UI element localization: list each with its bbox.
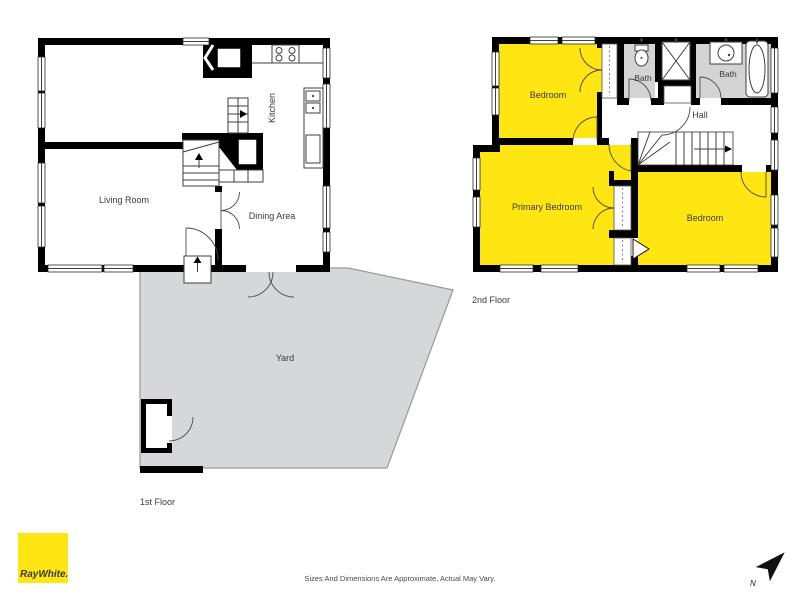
sf-linen-right: [691, 80, 696, 105]
closet-primary: [614, 186, 631, 230]
sf-step-wall: [473, 145, 500, 152]
first-floor-label: 1st Floor: [140, 497, 175, 507]
room-label-yard: Yard: [276, 353, 294, 363]
room-label-bedroom-bottom: Bedroom: [687, 213, 724, 223]
porch-floor: [146, 404, 167, 448]
porch-door-opening: [166, 416, 172, 443]
shower: [662, 42, 690, 80]
room-label-bedroom-top: Bedroom: [530, 90, 567, 100]
sf-shower-left-wall: [655, 40, 662, 82]
sf-bed-closet-wall-top: [597, 37, 602, 48]
sf-bedroom-top-wall-a: [637, 165, 742, 172]
upper-stairs: [638, 132, 733, 165]
room-label-primary-bedroom: Primary Bedroom: [512, 202, 582, 212]
yard-bottom-wall: [140, 466, 203, 473]
room-label-kitchen: Kitchen: [267, 93, 277, 123]
disclaimer-text: Sizes And Dimensions Are Approximate, Ac…: [304, 574, 495, 583]
ff-room-divider-wall: [38, 142, 188, 149]
sf-divider-wall-b: [597, 138, 609, 145]
sink-drain: [312, 95, 314, 97]
toilet: [635, 45, 648, 66]
sf-closet-bath-wall: [617, 37, 624, 105]
room-label-living-room: Living Room: [99, 195, 149, 205]
sf-shower-right-wall: [690, 40, 696, 82]
ff-dining-wall-stub-bottom: [215, 229, 222, 272]
compass-arrow-icon: [756, 545, 792, 581]
second-floor-plan: Bedroom Bath Bath Hall Primary Bedroom B…: [472, 37, 778, 305]
sf-closetA-bottom-wall: [609, 230, 631, 238]
logo-wordmark: RayWhite.: [20, 569, 68, 580]
room-label-bath-right: Bath: [719, 69, 737, 79]
bathtub: [746, 41, 768, 97]
brand-logo: RayWhite.: [18, 533, 68, 583]
stair-pantry: [238, 139, 257, 165]
stair-cabinets: [219, 170, 263, 182]
yard-door-opening: [246, 265, 296, 272]
room-label-bath-left: Bath: [634, 73, 652, 83]
yard-shape: [140, 268, 453, 468]
closet-top-bedroom: [602, 44, 617, 98]
compass: N: [750, 545, 792, 588]
floorplan-canvas: Living Room Kitchen Dining Area Yard 1st…: [0, 0, 800, 600]
sf-stair-west-wall: [631, 138, 638, 238]
sink-drain: [312, 107, 314, 109]
sf-bed-closet-wall-bot: [597, 92, 602, 138]
basement-stairs: [228, 98, 248, 133]
floorplan-page: Living Room Kitchen Dining Area Yard 1st…: [0, 0, 800, 600]
sf-closetA-top-wall: [612, 180, 631, 186]
sf-bedroom-top-wall-b: [766, 165, 771, 172]
sf-bath-bottom-d: [721, 98, 771, 105]
ff-dining-wall-stub-top: [215, 186, 222, 192]
bathroom-sink: [710, 42, 742, 64]
compass-north-label: N: [750, 579, 756, 588]
stove: [272, 45, 299, 63]
second-floor-label: 2nd Floor: [472, 295, 510, 305]
sf-divider-wall-a: [492, 138, 573, 145]
linen-closet: [664, 86, 691, 103]
room-label-hall: Hall: [692, 110, 708, 120]
room-label-dining-area: Dining Area: [249, 211, 296, 221]
sf-bath-bottom-c: [696, 98, 700, 105]
entry-stoop: [184, 256, 211, 283]
sf-linen-left: [658, 80, 664, 105]
fireplace-box: [217, 48, 241, 68]
sf-bath-bottom-a: [617, 98, 629, 105]
yard-area: [140, 268, 453, 473]
